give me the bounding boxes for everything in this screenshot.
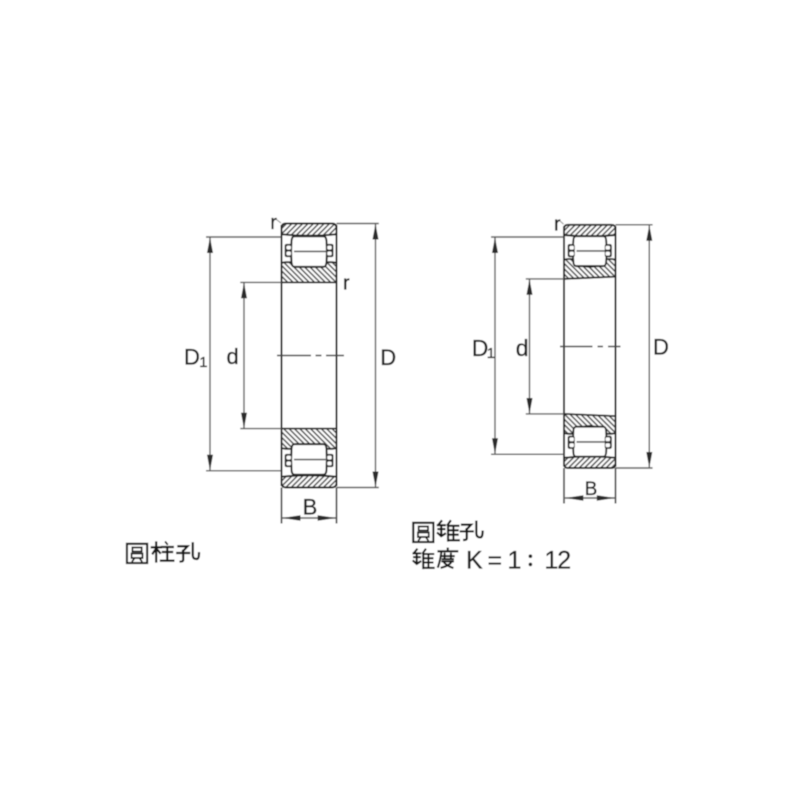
svg-text:D: D xyxy=(184,345,200,370)
svg-text:2: 2 xyxy=(557,547,571,575)
svg-text:B: B xyxy=(303,494,318,519)
svg-text:d: d xyxy=(227,344,239,369)
svg-text:1: 1 xyxy=(199,354,207,371)
svg-text:K: K xyxy=(466,547,483,575)
svg-text:r: r xyxy=(270,212,277,234)
svg-text:d: d xyxy=(516,335,529,361)
svg-text:r: r xyxy=(343,273,350,295)
svg-text:D: D xyxy=(653,335,669,360)
svg-text:=: = xyxy=(488,547,503,575)
svg-text:D: D xyxy=(380,345,396,370)
svg-text:1: 1 xyxy=(487,345,495,362)
svg-text:r: r xyxy=(554,214,561,236)
svg-text:1: 1 xyxy=(508,547,522,575)
svg-text:B: B xyxy=(585,479,598,500)
